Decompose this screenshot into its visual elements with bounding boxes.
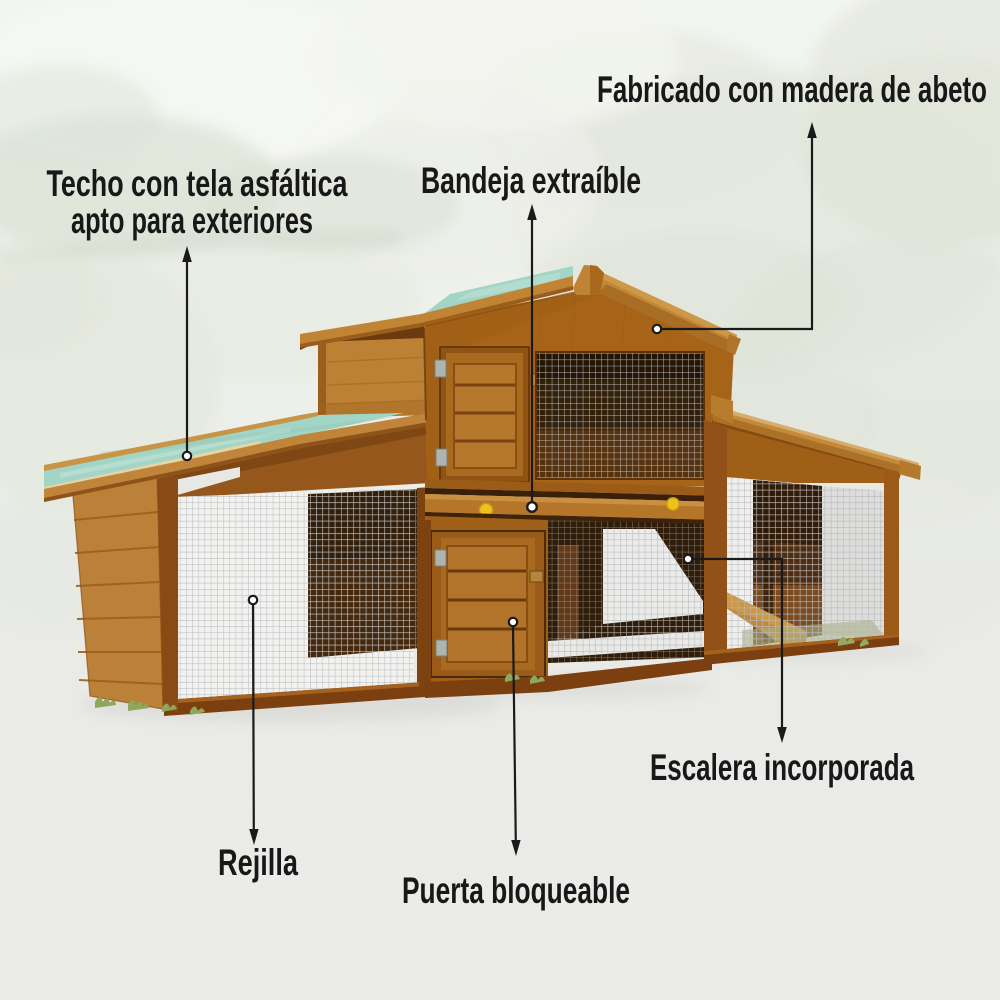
svg-text:Bandeja extraíble: Bandeja extraíble [421,160,641,201]
svg-text:Escalera incorporada: Escalera incorporada [650,747,914,788]
svg-text:apto para exteriores: apto para exteriores [71,200,313,241]
svg-text:Fabricado con madera de abeto: Fabricado con madera de abeto [597,69,987,110]
svg-text:Techo con tela asfáltica: Techo con tela asfáltica [47,163,348,204]
svg-text:Puerta bloqueable: Puerta bloqueable [402,870,630,911]
svg-text:Rejilla: Rejilla [218,842,298,883]
